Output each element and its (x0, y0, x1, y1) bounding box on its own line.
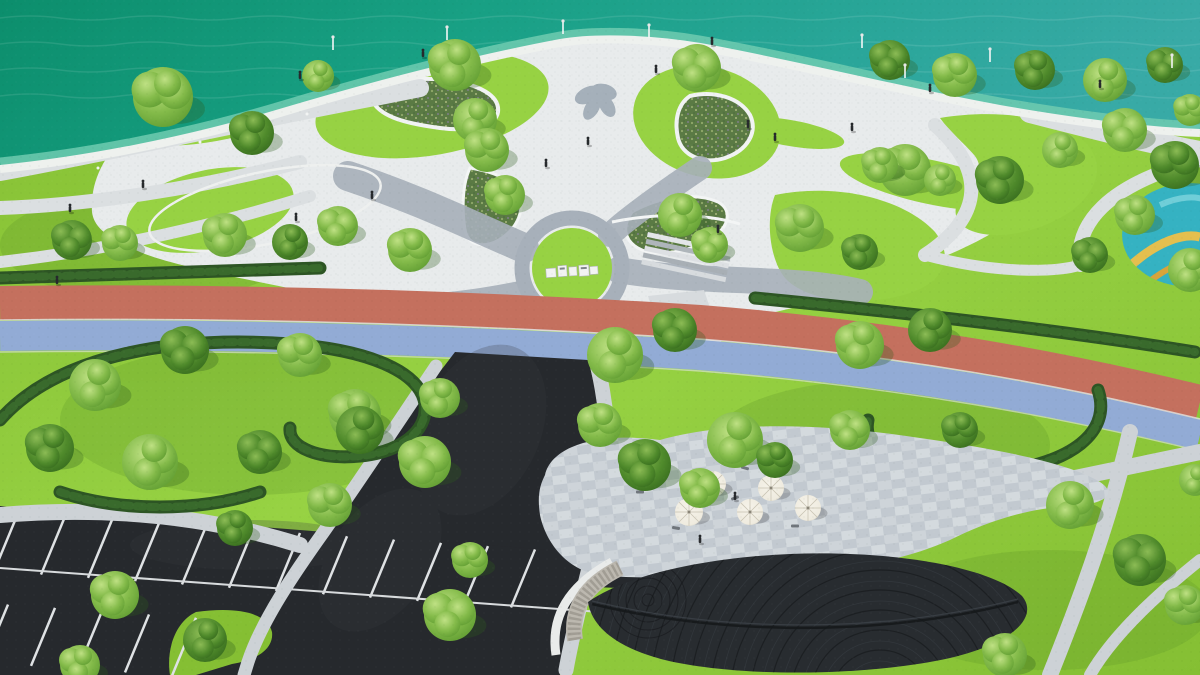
park-aerial-render (0, 0, 1200, 675)
grain-overlay (0, 0, 1200, 675)
scene-canvas (0, 0, 1200, 675)
